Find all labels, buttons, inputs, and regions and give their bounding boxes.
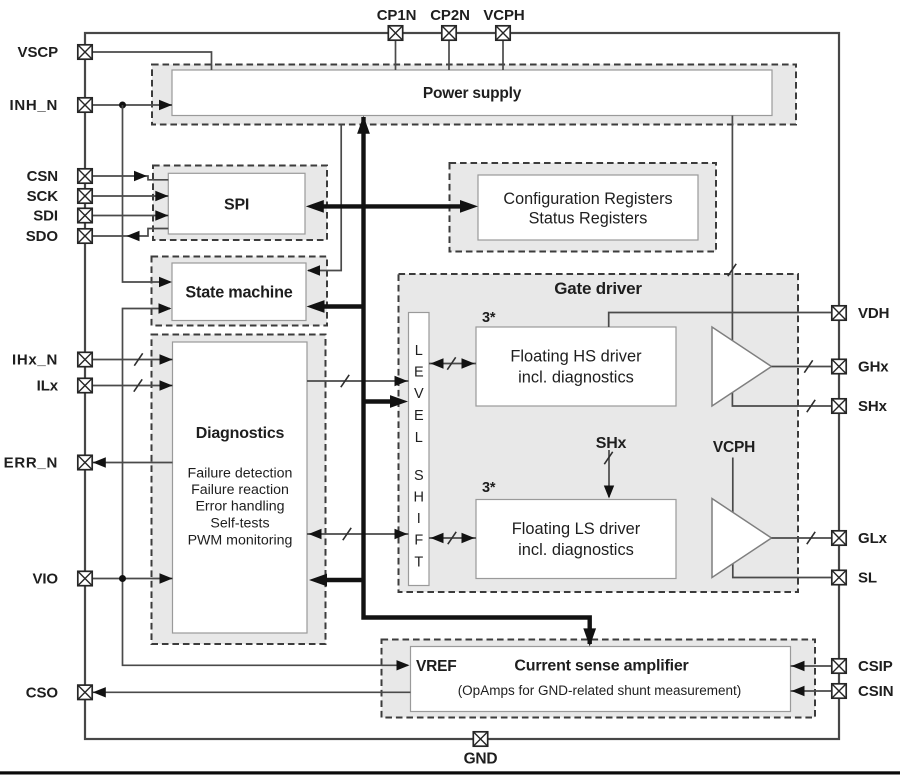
svg-text:CSIP: CSIP [858,658,893,675]
svg-text:3*: 3* [482,480,496,496]
svg-text:SL: SL [858,570,877,587]
svg-text:incl. diagnostics: incl. diagnostics [518,369,634,387]
svg-text:Failure detection: Failure detection [188,466,293,482]
svg-text:Configuration Registers: Configuration Registers [503,190,672,208]
svg-text:IHx_N: IHx_N [12,352,58,369]
svg-text:S: S [414,468,423,484]
svg-text:CP2N: CP2N [430,7,470,24]
svg-text:E: E [414,408,424,424]
svg-text:E: E [414,365,424,381]
svg-text:INH_N: INH_N [9,97,58,114]
svg-text:State machine: State machine [185,284,292,302]
svg-text:VIO: VIO [32,571,58,588]
svg-text:Failure reaction: Failure reaction [191,482,289,498]
svg-text:CSN: CSN [27,168,58,185]
svg-text:Error handling: Error handling [195,499,284,515]
svg-text:VCPH: VCPH [483,7,524,24]
svg-text:ERR_N: ERR_N [4,455,58,472]
svg-text:CSIN: CSIN [858,683,893,700]
svg-text:PWM monitoring: PWM monitoring [188,533,293,549]
svg-text:SDO: SDO [26,228,59,245]
svg-text:Gate driver: Gate driver [554,279,642,298]
svg-text:(OpAmps for GND-related shunt: (OpAmps for GND-related shunt measuremen… [458,683,742,698]
svg-text:VSCP: VSCP [18,44,59,61]
svg-text:Status Registers: Status Registers [529,210,648,228]
svg-text:VCPH: VCPH [713,439,755,456]
svg-text:GHx: GHx [858,359,889,376]
svg-text:SCK: SCK [27,188,59,205]
svg-text:I: I [417,511,421,527]
svg-text:incl. diagnostics: incl. diagnostics [518,541,634,559]
svg-text:SHx: SHx [858,398,888,415]
svg-text:GLx: GLx [858,530,888,547]
svg-text:Diagnostics: Diagnostics [196,425,285,442]
svg-text:ILx: ILx [37,378,59,395]
svg-text:SPI: SPI [224,197,249,214]
svg-text:F: F [414,533,423,549]
svg-text:CP1N: CP1N [377,7,417,24]
svg-text:Floating HS driver: Floating HS driver [510,348,642,366]
svg-text:Current sense amplifier: Current sense amplifier [514,658,688,675]
svg-text:V: V [414,386,424,402]
svg-text:VDH: VDH [858,305,889,322]
svg-text:CSO: CSO [26,684,59,701]
svg-text:GND: GND [464,751,498,768]
svg-text:T: T [414,554,423,570]
svg-text:H: H [414,489,424,505]
svg-text:Floating LS driver: Floating LS driver [512,520,641,538]
svg-text:VREF: VREF [416,658,457,675]
svg-text:3*: 3* [482,310,496,326]
svg-text:SDI: SDI [33,208,58,225]
svg-text:L: L [415,343,423,359]
svg-text:L: L [415,430,423,446]
svg-text:Power supply: Power supply [423,85,522,102]
svg-text:Self-tests: Self-tests [210,516,269,532]
svg-text:SHx: SHx [596,435,627,452]
